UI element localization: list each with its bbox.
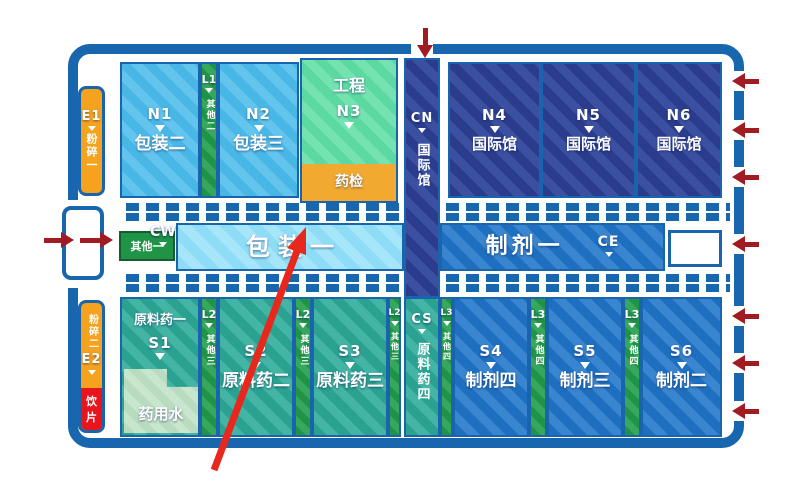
hall-s6-code: S6	[670, 343, 693, 360]
strip-l2-name: 其他三	[299, 334, 308, 367]
zone-cw-code-wrap: CW	[150, 224, 176, 249]
hall-n5: N5 国际馆	[541, 62, 636, 198]
hall-s4: S4 制剂四	[453, 297, 529, 437]
hall-s5: S5 制剂三	[547, 297, 623, 437]
hall-cs-code: CS	[411, 313, 432, 327]
down-marker-icon	[155, 125, 165, 132]
zone-yaoyongshui-label: 药用水	[138, 405, 183, 423]
down-marker-icon	[605, 252, 613, 257]
hall-n4-name: 国际馆	[472, 135, 517, 153]
entrance-arrow-east-3	[732, 169, 759, 185]
down-marker-icon	[254, 125, 264, 132]
down-marker-icon	[534, 323, 542, 328]
entrance-arrow-east-2	[732, 122, 759, 138]
entrance-arrow-east-6	[732, 355, 759, 371]
zone-yinpian: 饮片	[81, 388, 102, 430]
hall-cs-name: 原料药四	[416, 342, 429, 402]
down-marker-icon	[584, 126, 594, 133]
down-marker-icon	[205, 323, 213, 328]
hall-e-band-name: 制剂一	[486, 234, 564, 260]
down-marker-icon	[344, 122, 354, 129]
down-marker-icon	[391, 321, 399, 326]
hall-s5-name: 制剂三	[560, 371, 611, 391]
hall-s1-name: 原料药一	[134, 313, 186, 329]
strip-l2-c: L2 其他三	[388, 297, 401, 437]
strip-l3-code: L3	[625, 309, 640, 321]
hall-s2: S2 原料药二	[218, 297, 294, 437]
hall-e2-upper: 粉碎二 E2	[82, 303, 102, 388]
hall-s3: S3 原料药三	[312, 297, 388, 437]
hall-s1: 原料药一 S1 药用水	[120, 297, 200, 437]
hall-s1-code: S1	[148, 335, 171, 352]
down-marker-icon	[418, 128, 426, 133]
down-marker-icon	[580, 362, 590, 369]
down-marker-icon	[674, 126, 684, 133]
strip-l2-code: L2	[202, 309, 217, 321]
zone-cw-code: CW	[150, 224, 176, 240]
hall-e2-name: 粉碎二	[87, 314, 97, 350]
hall-s2-name: 原料药二	[222, 371, 290, 391]
hall-n3-name: 工程	[333, 76, 365, 95]
entrance-arrow-west-inner	[80, 232, 113, 248]
hall-n2-code: N2	[246, 106, 271, 123]
strip-l2-a: L2 其他三	[200, 297, 218, 437]
hall-cn: CN 国际馆	[404, 58, 440, 298]
hall-e1-code: E1	[82, 110, 102, 124]
hall-s2-code: S2	[244, 343, 267, 360]
down-marker-icon	[155, 353, 165, 360]
strip-l3-c: L3 其他四	[623, 297, 641, 437]
down-marker-icon	[251, 362, 261, 369]
zone-ce-code: CE	[598, 235, 620, 250]
hall-s5-code: S5	[573, 343, 596, 360]
hall-n2: N2 包装三	[218, 62, 299, 198]
hall-s6: S6 制剂二	[641, 297, 722, 437]
hall-e2-code: E2	[82, 353, 102, 367]
hall-cs: CS 原料药四	[404, 297, 440, 437]
hall-e1: E1 粉碎一	[78, 86, 105, 196]
down-marker-icon	[205, 88, 213, 93]
down-marker-icon	[345, 362, 355, 369]
strip-l3-name: 其他四	[628, 334, 637, 367]
strip-l1: L1 其他二	[200, 62, 218, 198]
hall-s3-code: S3	[338, 343, 361, 360]
down-marker-icon	[628, 323, 636, 328]
hall-n6-name: 国际馆	[656, 135, 701, 153]
hall-n3: 工程 N3 药检	[300, 58, 398, 203]
strip-l1-name: 其他二	[205, 99, 214, 132]
exhibition-venue-map: E1 粉碎一 N1 包装二 L1 其他二 N2 包装三 工程 N3 药检 CN …	[0, 0, 800, 481]
entrance-arrow-east-5	[732, 308, 759, 324]
hall-w1: 包装一	[176, 223, 404, 271]
hall-n1-code: N1	[148, 106, 173, 123]
hall-n5-name: 国际馆	[566, 135, 611, 153]
strip-l3-b: L3 其他四	[529, 297, 547, 437]
strip-l2-b: L2 其他三	[294, 297, 312, 437]
hall-e2: 粉碎二 E2 饮片	[78, 300, 105, 433]
down-marker-icon	[486, 362, 496, 369]
strip-l3-name: 其他四	[443, 332, 451, 362]
strip-l2-name: 其他三	[391, 332, 399, 362]
strip-l3-code: L3	[441, 309, 453, 319]
hall-s3-name: 原料药三	[316, 371, 384, 391]
hall-e1-name: 粉碎一	[86, 133, 97, 172]
zone-yaoyongshui: 药用水	[124, 369, 198, 433]
down-marker-icon	[490, 126, 500, 133]
strip-l3-name: 其他四	[534, 334, 543, 367]
entrance-arrow-east-7	[732, 403, 759, 419]
strip-l2-code: L2	[296, 309, 311, 321]
strip-l3-a: L3 其他四	[440, 297, 453, 437]
hall-cn-name: 国际馆	[416, 143, 429, 188]
hall-n4: N4 国际馆	[448, 62, 541, 198]
hall-n1-name: 包装二	[135, 134, 186, 154]
hall-cn-code: CN	[411, 112, 433, 126]
entrance-arrow-west-outer	[44, 232, 74, 248]
hall-s4-code: S4	[479, 343, 502, 360]
hall-n2-name: 包装三	[233, 134, 284, 154]
down-marker-icon	[159, 242, 167, 247]
entrance-arrow-east-4	[732, 236, 759, 252]
zone-ce-code-wrap: CE	[598, 235, 620, 259]
hall-n1: N1 包装二	[120, 62, 200, 198]
hall-w1-name: 包装一	[238, 233, 342, 262]
hall-n5-code: N5	[576, 107, 601, 124]
hall-s6-name: 制剂二	[656, 371, 707, 391]
strip-l2-name: 其他三	[205, 334, 214, 367]
strip-l3-code: L3	[531, 309, 546, 321]
down-marker-icon	[418, 329, 426, 334]
strip-l1-code: L1	[202, 74, 217, 86]
down-marker-icon	[443, 321, 451, 326]
strip-l2-code: L2	[389, 309, 401, 319]
hall-n4-code: N4	[482, 107, 507, 124]
hall-n3-code: N3	[337, 103, 362, 120]
zone-yaojian-label: 药检	[335, 174, 363, 191]
down-marker-icon	[88, 126, 96, 131]
entrance-arrow-north	[417, 28, 433, 58]
hall-e-band: 制剂一 CE	[440, 223, 665, 271]
down-marker-icon	[88, 370, 96, 375]
down-marker-icon	[299, 323, 307, 328]
service-room	[668, 230, 722, 267]
entrance-arrow-east-1	[732, 73, 759, 89]
zone-yaojian: 药检	[302, 164, 396, 201]
hall-n6: N6 国际馆	[636, 62, 722, 198]
hall-s4-name: 制剂四	[466, 371, 517, 391]
hall-n6-code: N6	[667, 107, 692, 124]
zone-yinpian-label: 饮片	[81, 393, 102, 425]
down-marker-icon	[677, 362, 687, 369]
